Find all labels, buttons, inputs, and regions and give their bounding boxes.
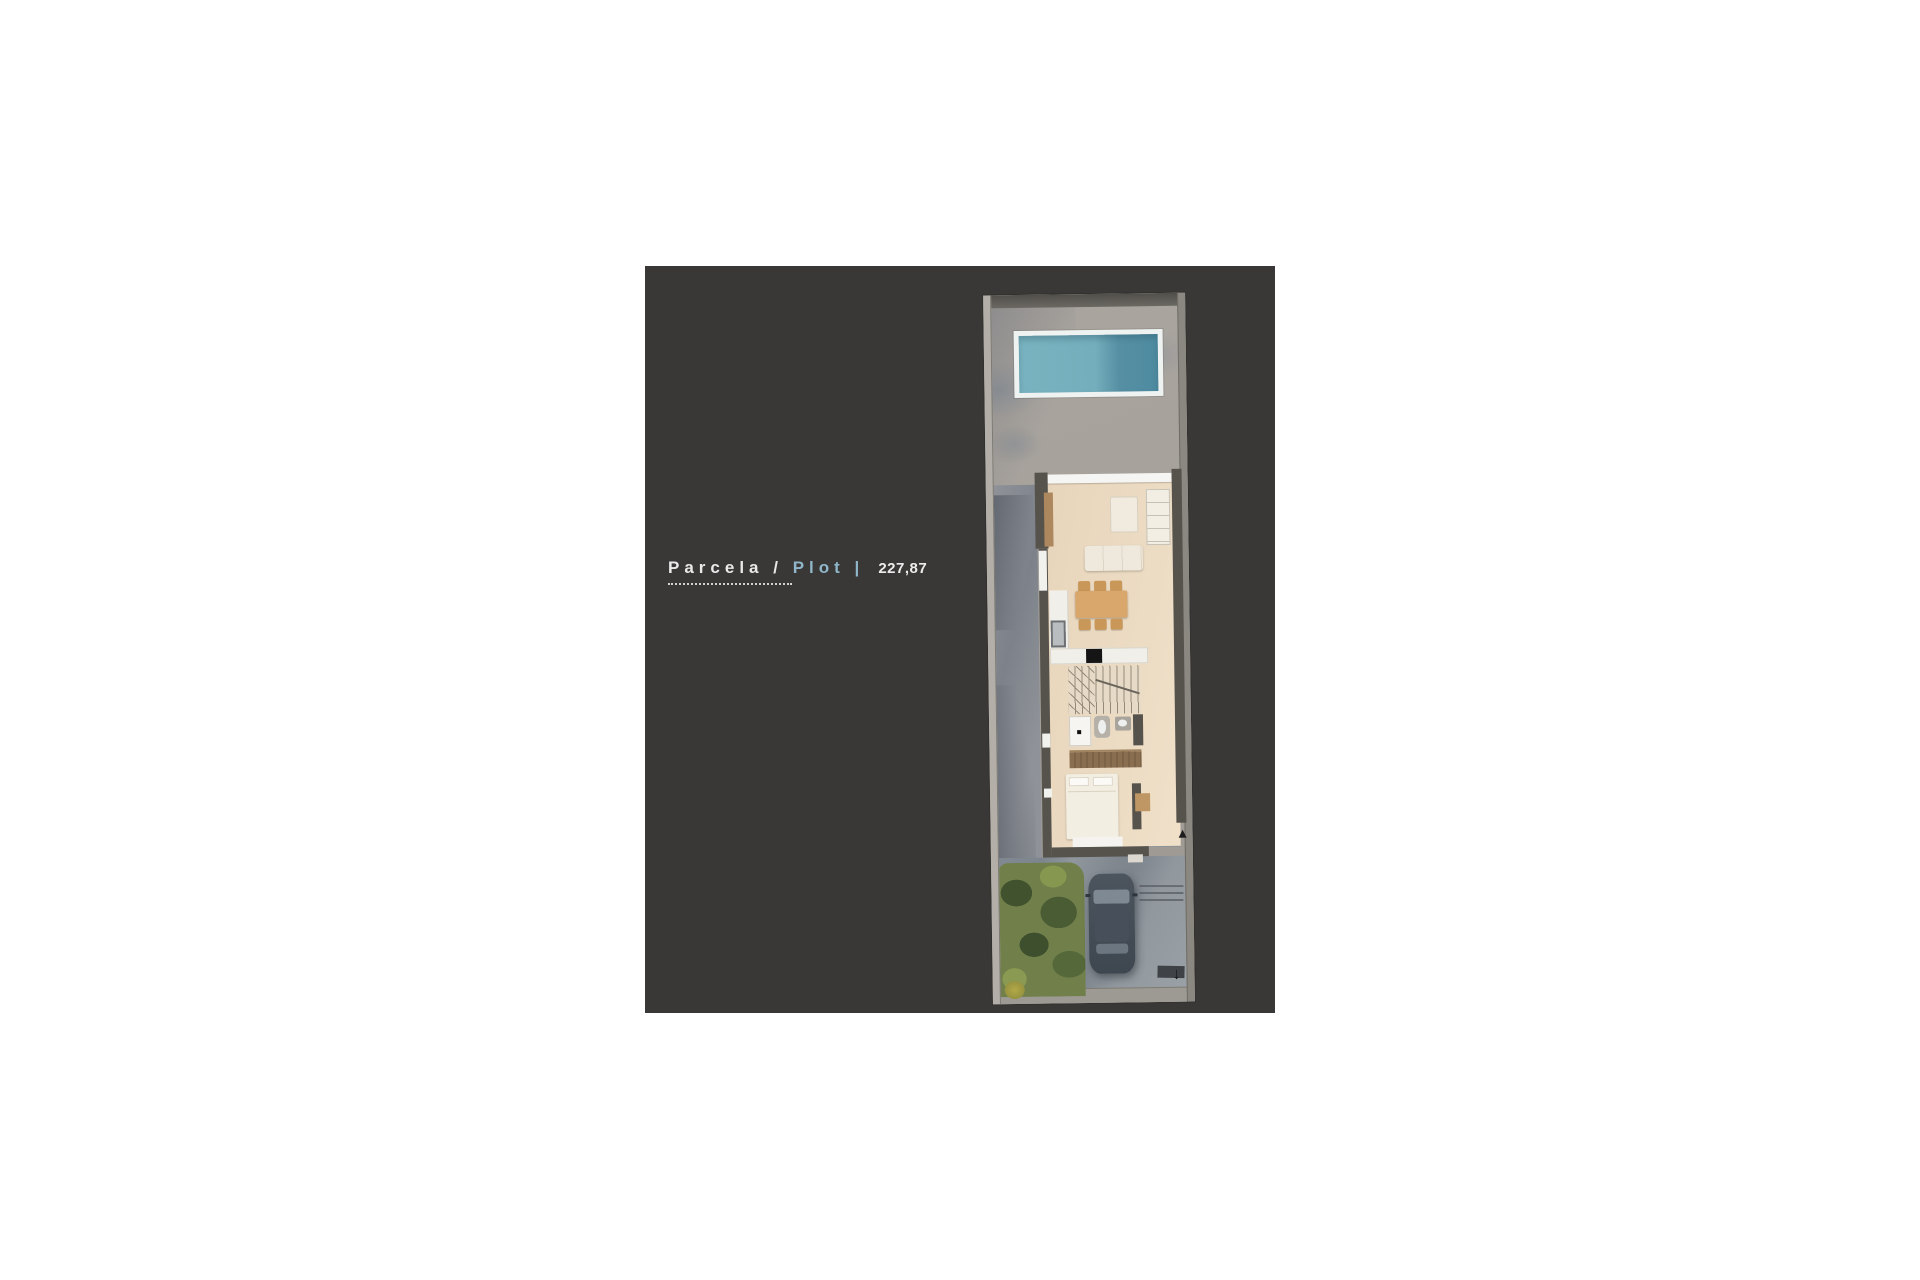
dining-table — [1075, 590, 1127, 618]
exterior-steps — [1139, 885, 1183, 905]
side-path-shadow — [993, 495, 1035, 631]
kitchen-sink — [1051, 620, 1066, 647]
bar-divider: | — [855, 558, 865, 577]
plot-label: Plot — [793, 558, 845, 577]
entry-bench — [1135, 793, 1150, 811]
window — [1042, 734, 1050, 748]
washbasin — [1069, 716, 1091, 746]
side-path-shadow — [996, 685, 1037, 866]
car-roof — [1095, 903, 1130, 941]
washbasin-drain — [1077, 730, 1081, 734]
parked-car — [1088, 873, 1135, 974]
plot-legend-line: Parcela / Plot |227,87 — [668, 558, 927, 578]
window — [1039, 551, 1048, 591]
tv-cabinet — [1044, 492, 1054, 546]
plot-legend: Parcela / Plot |227,87 — [668, 558, 927, 585]
pillow — [1093, 777, 1113, 786]
glass-facade — [1046, 473, 1172, 484]
wardrobe — [1069, 749, 1141, 768]
dining-chair — [1079, 619, 1091, 630]
armchair — [1110, 496, 1138, 532]
car-rear-window — [1096, 943, 1128, 953]
bed — [1066, 774, 1119, 840]
swimming-pool — [1014, 329, 1164, 398]
entrance-arrow-icon: ↓ — [1172, 967, 1180, 983]
garden-grass — [998, 862, 1086, 997]
bed-blanket-seam — [1068, 791, 1116, 793]
site-plan-aerial-view: ↓ — [983, 293, 1195, 1005]
entrance-arrow-icon — [1179, 830, 1187, 838]
pillow — [1069, 777, 1089, 786]
car-mirror-left — [1085, 894, 1090, 897]
presentation-panel: Parcela / Plot |227,87 — [645, 266, 1275, 1013]
sofa — [1085, 545, 1143, 571]
cooktop — [1086, 649, 1102, 663]
window — [1044, 789, 1052, 798]
shelf-unit — [1146, 489, 1171, 545]
bathroom-wall — [1133, 714, 1143, 745]
pool-water — [1019, 334, 1159, 393]
legend-dotted-underline — [668, 583, 792, 585]
parcela-label: Parcela — [668, 558, 764, 577]
car-mirror-right — [1132, 893, 1137, 896]
entry-step — [1128, 854, 1143, 862]
dining-chair — [1095, 619, 1107, 630]
toilet-bowl — [1098, 720, 1106, 734]
toilet — [1094, 716, 1110, 738]
slash-separator: / — [773, 558, 783, 577]
plot-area-value: 227,87 — [878, 560, 927, 577]
bathroom-sink-basin — [1118, 719, 1127, 726]
bathroom-sink — [1115, 716, 1131, 730]
car-windshield — [1093, 889, 1129, 904]
staircase-winder — [1068, 666, 1095, 714]
dining-chair — [1111, 619, 1123, 630]
